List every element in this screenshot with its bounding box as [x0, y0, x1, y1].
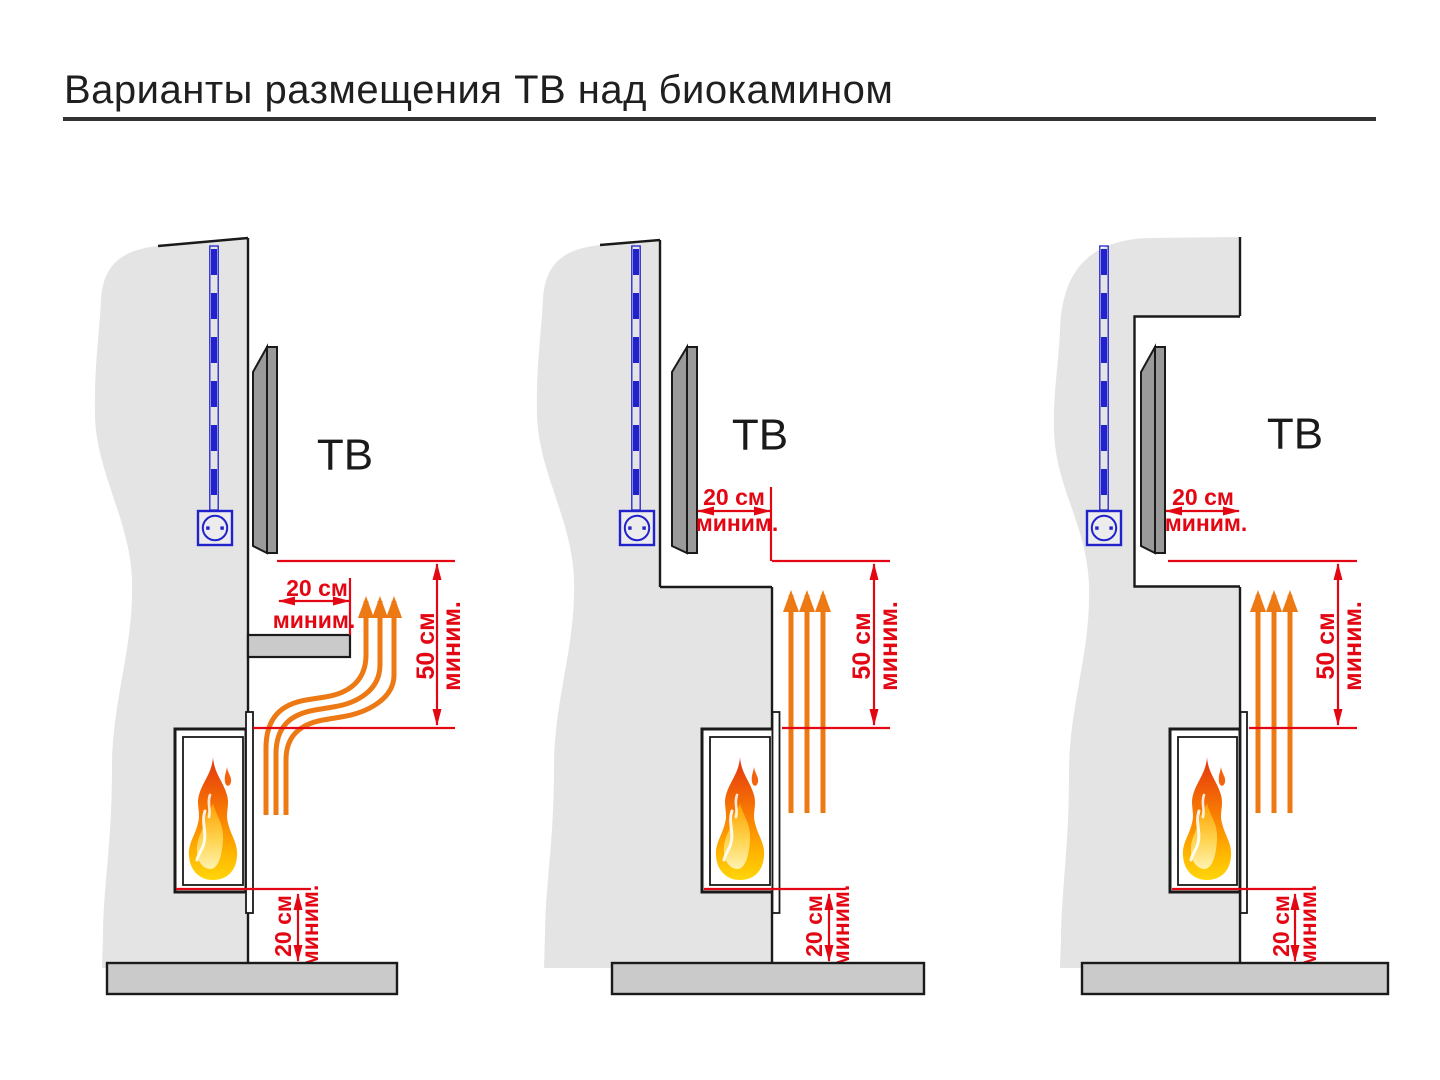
fireplace-glass	[246, 712, 253, 913]
diagram-scene: ТВ 20 см миним. 50 см миним. 20 см миним…	[0, 0, 1440, 1080]
infographic-page: Варианты размещения ТВ над биокамином	[0, 0, 1440, 1080]
floor-gap-value: 20 см	[1268, 895, 1294, 957]
diagram-variant-3: ТВ 20 см миним. 50 см миним. 20 см миним…	[1054, 237, 1388, 994]
mantel-shelf	[248, 635, 350, 657]
fireplace-glass	[1241, 712, 1248, 913]
floor	[1082, 963, 1388, 994]
floor-gap-qualifier: миним.	[1295, 885, 1321, 968]
heat-arrows-icon	[266, 601, 394, 815]
tv-gap-qualifier: миним.	[696, 510, 779, 536]
power-outlet-icon	[198, 511, 232, 545]
floor-gap-qualifier: миним.	[297, 885, 323, 968]
fire-gap-qualifier: миним.	[1339, 601, 1367, 691]
fire-gap-value: 50 см	[412, 612, 440, 679]
diagram-variant-1: ТВ 20 см миним. 50 см миним. 20 см миним…	[95, 238, 466, 994]
floor-gap-value: 20 см	[270, 895, 296, 957]
tv-gap-value: 20 см	[286, 575, 348, 601]
tv-side-view	[672, 347, 697, 553]
tv-label: ТВ	[732, 411, 788, 460]
floor	[107, 963, 397, 994]
power-outlet-icon	[620, 511, 654, 545]
fire-gap-value: 50 см	[848, 612, 876, 679]
floor-gap-value: 20 см	[801, 895, 827, 957]
tv-side-view	[1141, 347, 1165, 553]
tv-gap-qualifier: миним.	[273, 607, 356, 633]
floor-gap-qualifier: миним.	[828, 885, 854, 968]
tv-label: ТВ	[1267, 410, 1323, 459]
fire-gap-qualifier: миним.	[438, 601, 466, 691]
floor	[612, 963, 924, 994]
fire-gap-qualifier: миним.	[875, 601, 903, 691]
tv-gap-value: 20 см	[1172, 484, 1234, 510]
tv-label: ТВ	[317, 431, 373, 480]
tv-side-view	[253, 347, 277, 553]
tv-gap-qualifier: миним.	[1165, 510, 1248, 536]
fireplace-glass	[773, 712, 780, 913]
fire-gap-value: 50 см	[1312, 612, 1340, 679]
diagram-variant-2: ТВ 20 см миним. 50 см миним. 20 см миним…	[537, 240, 924, 994]
tv-gap-value: 20 см	[703, 484, 765, 510]
heat-arrows-icon	[1258, 595, 1290, 813]
power-outlet-icon	[1087, 511, 1121, 545]
heat-arrows-icon	[791, 595, 823, 813]
